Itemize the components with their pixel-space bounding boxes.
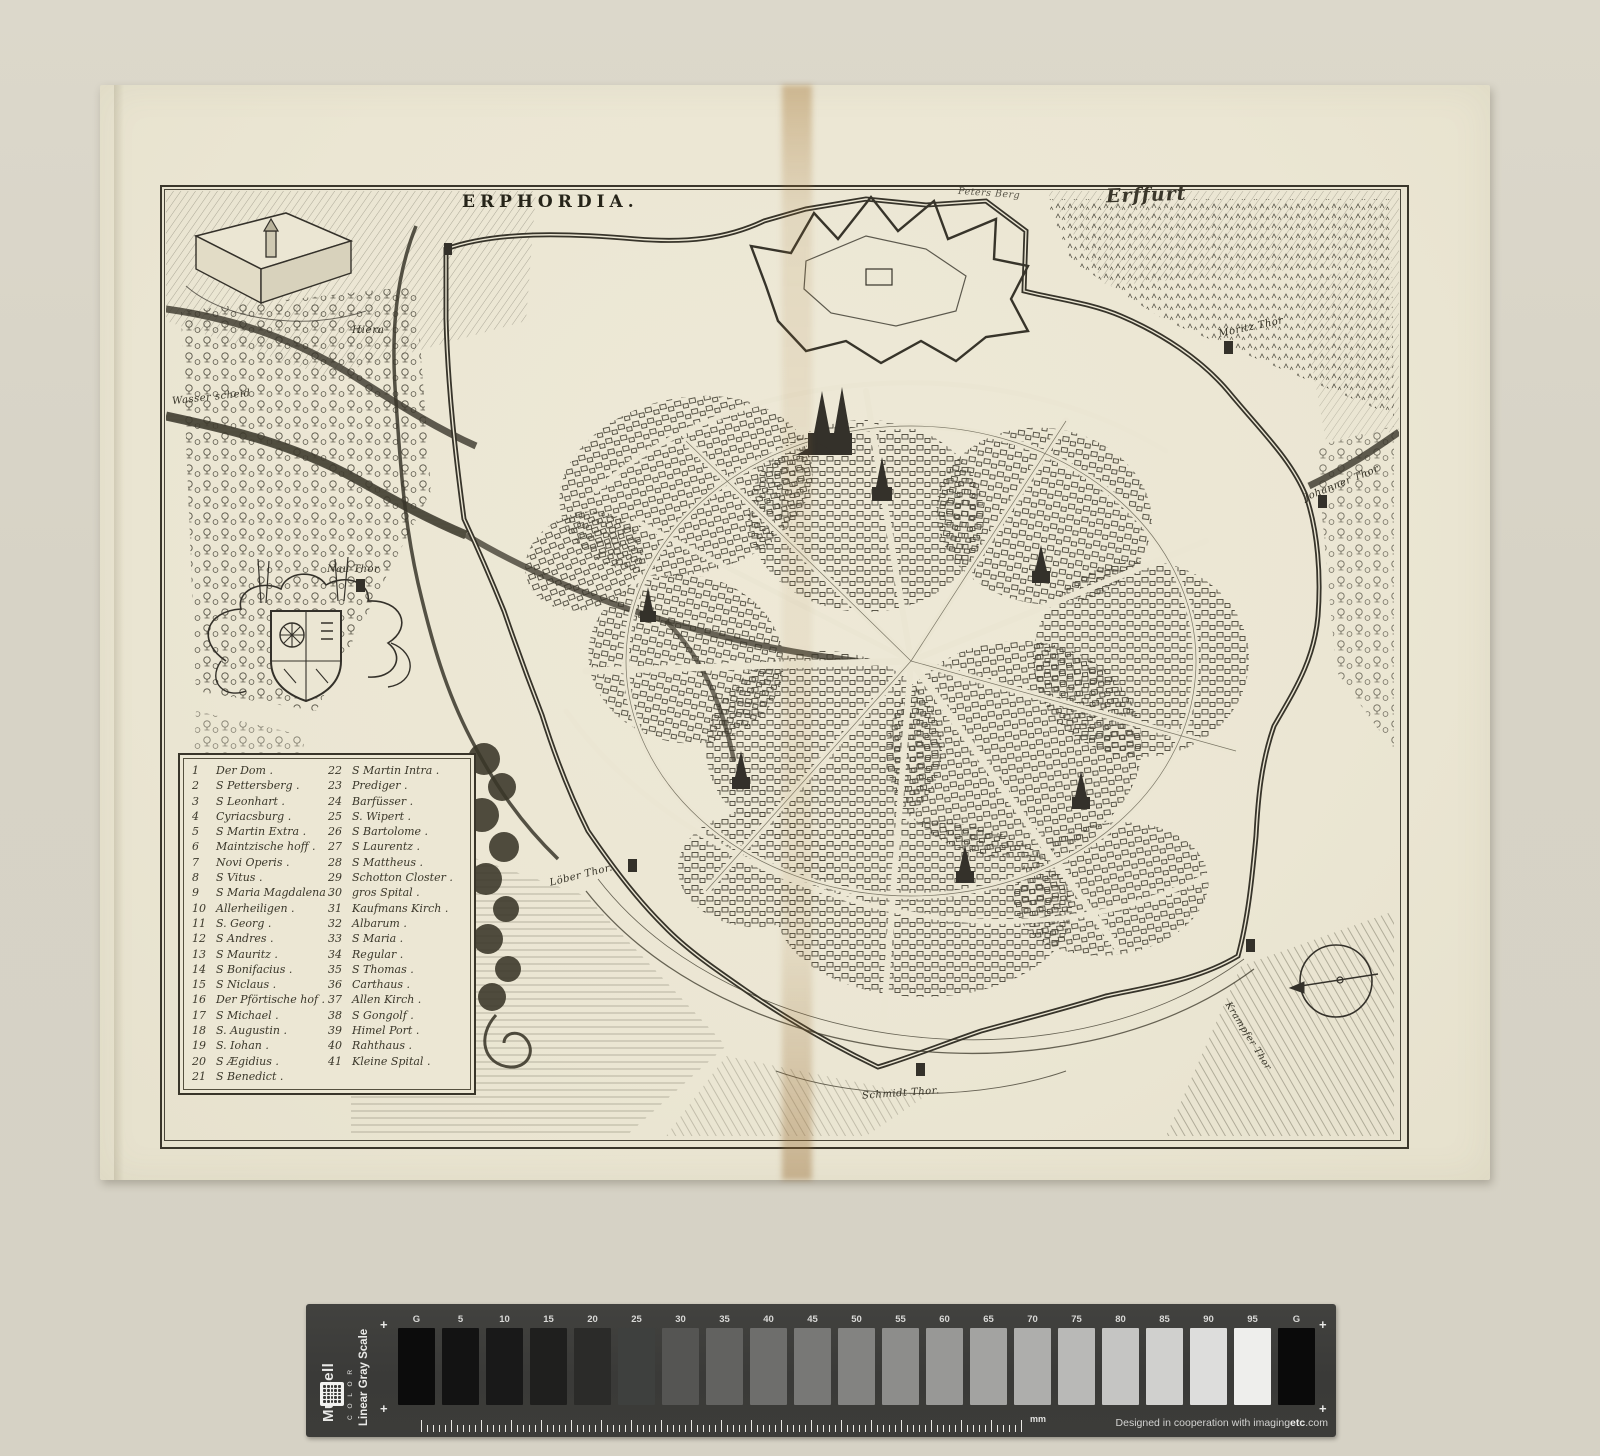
legend-entry-name: S Bonifacius . bbox=[216, 962, 292, 977]
legend-entry-number: 34 bbox=[328, 947, 352, 962]
ruler-tick bbox=[475, 1425, 476, 1432]
ruler-tick bbox=[943, 1425, 944, 1432]
legend-entry-number: 19 bbox=[192, 1038, 216, 1053]
patch-swatch bbox=[1058, 1328, 1095, 1405]
legend-entry-name: Rahthaus . bbox=[352, 1038, 412, 1053]
legend-entry-number: 20 bbox=[192, 1054, 216, 1069]
ruler-tick bbox=[583, 1425, 584, 1432]
ruler-tick bbox=[631, 1420, 632, 1432]
ruler-tick bbox=[697, 1425, 698, 1432]
patch-label: 25 bbox=[618, 1312, 655, 1328]
legend-entry-number: 9 bbox=[192, 885, 216, 900]
ruler-tick bbox=[883, 1425, 884, 1432]
ruler-tick bbox=[871, 1420, 872, 1432]
ruler-tick bbox=[853, 1425, 854, 1432]
ruler-tick bbox=[613, 1425, 614, 1432]
ruler-tick bbox=[859, 1425, 860, 1432]
ruler-tick bbox=[535, 1425, 536, 1432]
legend-entry: 41Kleine Spital . bbox=[328, 1054, 464, 1069]
legend-entry: 33S Maria . bbox=[328, 931, 464, 946]
legend-entry-name: Cyriacsburg . bbox=[216, 809, 291, 824]
ruler-tick bbox=[451, 1420, 452, 1432]
legend-entry-name: Albarum . bbox=[352, 916, 407, 931]
legend-entry-name: S Ægidius . bbox=[216, 1054, 279, 1069]
legend-entry-number: 12 bbox=[192, 931, 216, 946]
grayscale-patch: 75 bbox=[1058, 1312, 1095, 1405]
legend-entry-number: 27 bbox=[328, 839, 352, 854]
grayscale-patch: 80 bbox=[1102, 1312, 1139, 1405]
legend-entry-name: S Mauritz . bbox=[216, 947, 278, 962]
grayscale-patch: G bbox=[398, 1312, 435, 1405]
ruler-tick bbox=[739, 1425, 740, 1432]
ruler-tick bbox=[445, 1425, 446, 1432]
legend-entry: 39Himel Port . bbox=[328, 1023, 464, 1038]
grayscale-patch: 20 bbox=[574, 1312, 611, 1405]
legend-entry-name: S. Iohan . bbox=[216, 1038, 269, 1053]
ruler-tick bbox=[565, 1425, 566, 1432]
legend-entry-number: 8 bbox=[192, 870, 216, 885]
legend-entry-number: 6 bbox=[192, 839, 216, 854]
ruler-tick bbox=[679, 1425, 680, 1432]
ruler-tick bbox=[649, 1425, 650, 1432]
ruler-tick bbox=[973, 1425, 974, 1432]
patch-label: 75 bbox=[1058, 1312, 1095, 1328]
legend-col1: 1Der Dom .2S Pettersberg .3S Leonhart .4… bbox=[192, 763, 328, 1085]
legend-entry: 31Kaufmans Kirch . bbox=[328, 901, 464, 916]
grayscale-patch: 40 bbox=[750, 1312, 787, 1405]
ruler-tick bbox=[751, 1420, 752, 1432]
patch-label: 90 bbox=[1190, 1312, 1227, 1328]
legend-entry-name: S. Georg . bbox=[216, 916, 271, 931]
legend-entry-name: Der Pförtische hof . bbox=[216, 992, 325, 1007]
credit-text: Designed in cooperation with imagingetc.… bbox=[1076, 1417, 1328, 1429]
ruler-tick bbox=[787, 1425, 788, 1432]
patch-swatch bbox=[618, 1328, 655, 1405]
legend-entry: 18S. Augustin . bbox=[192, 1023, 328, 1038]
legend-entry-number: 26 bbox=[328, 824, 352, 839]
patch-swatch bbox=[838, 1328, 875, 1405]
legend-entry: 6Maintzische hoff . bbox=[192, 839, 328, 854]
ruler-tick bbox=[601, 1420, 602, 1432]
ruler-tick bbox=[595, 1425, 596, 1432]
patch-label: 80 bbox=[1102, 1312, 1139, 1328]
legend-entry-name: S Leonhart . bbox=[216, 794, 285, 809]
grayscale-patch: 25 bbox=[618, 1312, 655, 1405]
legend-col2: 22S Martin Intra .23Prediger .24Barfüsse… bbox=[328, 763, 464, 1085]
legend-entry: 4Cyriacsburg . bbox=[192, 809, 328, 824]
ruler-tick bbox=[949, 1425, 950, 1432]
patch-swatch bbox=[398, 1328, 435, 1405]
ruler-tick bbox=[709, 1425, 710, 1432]
ruler-tick bbox=[865, 1425, 866, 1432]
legend-entry: 36Carthaus . bbox=[328, 977, 464, 992]
ruler-tick bbox=[637, 1425, 638, 1432]
ruler-tick bbox=[811, 1420, 812, 1432]
ruler-tick bbox=[889, 1425, 890, 1432]
legend-entry-name: Allerheiligen . bbox=[216, 901, 295, 916]
grayscale-patch: 10 bbox=[486, 1312, 523, 1405]
legend-entry: 34Regular . bbox=[328, 947, 464, 962]
legend-entry-number: 2 bbox=[192, 778, 216, 793]
ruler-tick bbox=[511, 1420, 512, 1432]
ruler-tick bbox=[427, 1425, 428, 1432]
ruler-tick bbox=[877, 1425, 878, 1432]
legend-entry: 20S Ægidius . bbox=[192, 1054, 328, 1069]
patch-label: 85 bbox=[1146, 1312, 1183, 1328]
legend-entry: 10Allerheiligen . bbox=[192, 901, 328, 916]
legend-entry: 14S Bonifacius . bbox=[192, 962, 328, 977]
legend-entry: 2S Pettersberg . bbox=[192, 778, 328, 793]
ruler-tick bbox=[529, 1425, 530, 1432]
ruler-tick bbox=[661, 1420, 662, 1432]
legend-entry: 35S Thomas . bbox=[328, 962, 464, 977]
ruler-tick bbox=[523, 1425, 524, 1432]
legend-entry: 1Der Dom . bbox=[192, 763, 328, 778]
patch-label: 95 bbox=[1234, 1312, 1271, 1328]
patch-swatch bbox=[442, 1328, 479, 1405]
legend-entry-number: 5 bbox=[192, 824, 216, 839]
legend-entry-name: S Bartolome . bbox=[352, 824, 428, 839]
ruler-tick bbox=[703, 1425, 704, 1432]
legend-entry-number: 29 bbox=[328, 870, 352, 885]
legend-entry-name: Allen Kirch . bbox=[352, 992, 421, 1007]
ruler-tick bbox=[817, 1425, 818, 1432]
legend-entry: 17S Michael . bbox=[192, 1008, 328, 1023]
ruler-tick bbox=[691, 1420, 692, 1432]
legend-entry: 7Novi Operis . bbox=[192, 855, 328, 870]
ruler-tick bbox=[913, 1425, 914, 1432]
ruler-unit-label: mm bbox=[1030, 1414, 1046, 1424]
ruler-tick bbox=[757, 1425, 758, 1432]
legend-entry-name: Carthaus . bbox=[352, 977, 410, 992]
legend: 1Der Dom .2S Pettersberg .3S Leonhart .4… bbox=[192, 763, 464, 1085]
legend-entry-name: Novi Operis . bbox=[216, 855, 289, 870]
legend-entry: 12S Andres . bbox=[192, 931, 328, 946]
paper-fold-crease bbox=[114, 85, 124, 1180]
patch-swatch bbox=[1102, 1328, 1139, 1405]
legend-entry-name: S Niclaus . bbox=[216, 977, 276, 992]
legend-entry: 3S Leonhart . bbox=[192, 794, 328, 809]
patch-label: 10 bbox=[486, 1312, 523, 1328]
ruler-tick bbox=[673, 1425, 674, 1432]
legend-entry-name: S. Wipert . bbox=[352, 809, 411, 824]
patch-swatch bbox=[1190, 1328, 1227, 1405]
ruler-tick bbox=[997, 1425, 998, 1432]
grayscale-patch: 60 bbox=[926, 1312, 963, 1405]
ruler-tick bbox=[805, 1425, 806, 1432]
patch-swatch bbox=[662, 1328, 699, 1405]
ruler-tick bbox=[547, 1425, 548, 1432]
patch-swatch bbox=[794, 1328, 831, 1405]
legend-entry: 15S Niclaus . bbox=[192, 977, 328, 992]
legend-entry: 23Prediger . bbox=[328, 778, 464, 793]
legend-entry: 28S Mattheus . bbox=[328, 855, 464, 870]
ruler-tick bbox=[667, 1425, 668, 1432]
legend-entry: 32Albarum . bbox=[328, 916, 464, 931]
ruler-tick bbox=[763, 1425, 764, 1432]
ruler-tick bbox=[715, 1425, 716, 1432]
grayscale-patch: 35 bbox=[706, 1312, 743, 1405]
legend-entry-number: 7 bbox=[192, 855, 216, 870]
patch-label: G bbox=[1278, 1312, 1315, 1328]
legend-entry-number: 4 bbox=[192, 809, 216, 824]
legend-entry: 21S Benedict . bbox=[192, 1069, 328, 1084]
grayscale-patch: 50 bbox=[838, 1312, 875, 1405]
patch-swatch bbox=[750, 1328, 787, 1405]
map-title: ERPHORDIA. bbox=[462, 192, 639, 212]
legend-entry-number: 33 bbox=[328, 931, 352, 946]
ruler-tick bbox=[1003, 1425, 1004, 1432]
ruler-ticks bbox=[421, 1416, 1031, 1434]
patch-swatch bbox=[1014, 1328, 1051, 1405]
grayscale-patch: 55 bbox=[882, 1312, 919, 1405]
legend-entry-name: S Martin Extra . bbox=[216, 824, 306, 839]
ruler-tick bbox=[991, 1420, 992, 1432]
fold-stain bbox=[782, 85, 812, 1180]
legend-entry-name: S Laurentz . bbox=[352, 839, 420, 854]
patch-swatch bbox=[926, 1328, 963, 1405]
ruler-tick bbox=[835, 1425, 836, 1432]
legend-entry-number: 31 bbox=[328, 901, 352, 916]
ruler-tick bbox=[607, 1425, 608, 1432]
ruler-tick bbox=[625, 1425, 626, 1432]
ruler-tick bbox=[655, 1425, 656, 1432]
ruler-tick bbox=[967, 1425, 968, 1432]
ruler-tick bbox=[505, 1425, 506, 1432]
label-nau-thor: Nau Thor bbox=[327, 564, 379, 575]
ruler-tick bbox=[847, 1425, 848, 1432]
legend-entry-number: 24 bbox=[328, 794, 352, 809]
legend-entry-name: gros Spital . bbox=[352, 885, 420, 900]
ruler-tick bbox=[487, 1425, 488, 1432]
ruler-tick bbox=[907, 1425, 908, 1432]
ruler-tick bbox=[517, 1425, 518, 1432]
ruler-tick bbox=[721, 1420, 722, 1432]
legend-entry-name: S Vitus . bbox=[216, 870, 262, 885]
ruler-tick bbox=[553, 1425, 554, 1432]
legend-entry-name: S Martin Intra . bbox=[352, 763, 439, 778]
legend-entry-number: 38 bbox=[328, 1008, 352, 1023]
legend-entry-number: 10 bbox=[192, 901, 216, 916]
credit-prefix: Designed in cooperation with imaging bbox=[1116, 1417, 1291, 1429]
patch-label: 30 bbox=[662, 1312, 699, 1328]
ruler-tick bbox=[985, 1425, 986, 1432]
patch-swatch bbox=[706, 1328, 743, 1405]
river-label-hiera: Hiera bbox=[352, 324, 385, 336]
grayscale-patch: 15 bbox=[530, 1312, 567, 1405]
legend-entry-name: S Maria Magdalena . bbox=[216, 885, 333, 900]
patch-label: 45 bbox=[794, 1312, 831, 1328]
credit-suffix: .com bbox=[1305, 1417, 1328, 1429]
legend-entry-name: Schotton Closter . bbox=[352, 870, 453, 885]
ruler-tick bbox=[1009, 1425, 1010, 1432]
legend-entry: 22S Martin Intra . bbox=[328, 763, 464, 778]
ruler-tick bbox=[457, 1425, 458, 1432]
legend-entry-name: Barfüsser . bbox=[352, 794, 413, 809]
ruler-tick bbox=[823, 1425, 824, 1432]
legend-entry: 38S Gongolf . bbox=[328, 1008, 464, 1023]
legend-entry-name: S Gongolf . bbox=[352, 1008, 414, 1023]
legend-entry-name: S Thomas . bbox=[352, 962, 414, 977]
patch-swatch bbox=[574, 1328, 611, 1405]
patch-label: 15 bbox=[530, 1312, 567, 1328]
ruler-tick bbox=[775, 1425, 776, 1432]
legend-entry-number: 25 bbox=[328, 809, 352, 824]
legend-entry-number: 40 bbox=[328, 1038, 352, 1053]
legend-entry-name: S Benedict . bbox=[216, 1069, 283, 1084]
legend-entry-name: S Andres . bbox=[216, 931, 274, 946]
legend-entry-name: Kleine Spital . bbox=[352, 1054, 430, 1069]
legend-entry-number: 28 bbox=[328, 855, 352, 870]
patch-label: 35 bbox=[706, 1312, 743, 1328]
munsell-grayscale-bar: Munsell C O L O R Linear Gray Scale + + … bbox=[306, 1304, 1336, 1437]
patch-swatch bbox=[1278, 1328, 1315, 1405]
ruler-tick bbox=[643, 1425, 644, 1432]
legend-entry-name: Maintzische hoff . bbox=[216, 839, 316, 854]
patch-swatch bbox=[1234, 1328, 1271, 1405]
ruler-tick bbox=[931, 1420, 932, 1432]
ruler-tick bbox=[481, 1420, 482, 1432]
legend-entry-number: 1 bbox=[192, 763, 216, 778]
legend-entry-name: Regular . bbox=[352, 947, 403, 962]
ruler-tick bbox=[619, 1425, 620, 1432]
patch-swatch bbox=[486, 1328, 523, 1405]
ruler-tick bbox=[463, 1425, 464, 1432]
legend-entry: 27S Laurentz . bbox=[328, 839, 464, 854]
legend-entry-number: 41 bbox=[328, 1054, 352, 1069]
legend-entry-number: 11 bbox=[192, 916, 216, 931]
legend-entry-number: 39 bbox=[328, 1023, 352, 1038]
legend-entry-name: Himel Port . bbox=[352, 1023, 419, 1038]
legend-entry: 24Barfüsser . bbox=[328, 794, 464, 809]
legend-entry: 25S. Wipert . bbox=[328, 809, 464, 824]
grayscale-patch: G bbox=[1278, 1312, 1315, 1405]
grayscale-patch: 45 bbox=[794, 1312, 831, 1405]
legend-entry-number: 17 bbox=[192, 1008, 216, 1023]
patch-swatch bbox=[530, 1328, 567, 1405]
credit-bold: etc bbox=[1290, 1417, 1305, 1429]
patch-label: 60 bbox=[926, 1312, 963, 1328]
ruler-tick bbox=[1015, 1425, 1016, 1432]
legend-entry: 37Allen Kirch . bbox=[328, 992, 464, 1007]
patch-label: 40 bbox=[750, 1312, 787, 1328]
legend-entry-number: 22 bbox=[328, 763, 352, 778]
ruler-tick bbox=[799, 1425, 800, 1432]
legend-entry-number: 18 bbox=[192, 1023, 216, 1038]
patch-label: 20 bbox=[574, 1312, 611, 1328]
ruler-tick bbox=[499, 1425, 500, 1432]
ruler-tick bbox=[829, 1425, 830, 1432]
legend-entry-number: 21 bbox=[192, 1069, 216, 1084]
legend-entry-number: 37 bbox=[328, 992, 352, 1007]
ruler-tick bbox=[541, 1420, 542, 1432]
grayscale-patch: 90 bbox=[1190, 1312, 1227, 1405]
legend-entry-name: Der Dom . bbox=[216, 763, 273, 778]
ruler-tick bbox=[571, 1420, 572, 1432]
legend-entry: 40Rahthaus . bbox=[328, 1038, 464, 1053]
ruler-tick bbox=[979, 1425, 980, 1432]
ruler-tick bbox=[493, 1425, 494, 1432]
legend-entry-name: S Mattheus . bbox=[352, 855, 423, 870]
ruler-tick bbox=[589, 1425, 590, 1432]
ruler-tick bbox=[745, 1425, 746, 1432]
legend-entry-number: 16 bbox=[192, 992, 216, 1007]
patch-label: 5 bbox=[442, 1312, 479, 1328]
legend-entry: 8S Vitus . bbox=[192, 870, 328, 885]
ruler-tick bbox=[895, 1425, 896, 1432]
ruler-tick bbox=[961, 1420, 962, 1432]
legend-entry-number: 30 bbox=[328, 885, 352, 900]
ruler-tick bbox=[733, 1425, 734, 1432]
grayscale-patch: 95 bbox=[1234, 1312, 1271, 1405]
ruler-tick bbox=[685, 1425, 686, 1432]
patch-label: 50 bbox=[838, 1312, 875, 1328]
patch-label: G bbox=[398, 1312, 435, 1328]
grayscale-patch: 65 bbox=[970, 1312, 1007, 1405]
ruler-tick bbox=[841, 1420, 842, 1432]
legend-entry-number: 14 bbox=[192, 962, 216, 977]
legend-entry-number: 35 bbox=[328, 962, 352, 977]
legend-entry-name: S Pettersberg . bbox=[216, 778, 300, 793]
legend-entry: 19S. Iohan . bbox=[192, 1038, 328, 1053]
legend-entry-number: 32 bbox=[328, 916, 352, 931]
ruler-tick bbox=[577, 1425, 578, 1432]
patch-swatch bbox=[970, 1328, 1007, 1405]
ruler-tick bbox=[925, 1425, 926, 1432]
ruler-tick bbox=[727, 1425, 728, 1432]
legend-entry-number: 3 bbox=[192, 794, 216, 809]
ruler-tick bbox=[469, 1425, 470, 1432]
legend-entry: 30gros Spital . bbox=[328, 885, 464, 900]
patch-swatch bbox=[882, 1328, 919, 1405]
city-name-label: Erffurt bbox=[1106, 183, 1187, 208]
legend-entry-name: S. Augustin . bbox=[216, 1023, 287, 1038]
ruler-tick bbox=[439, 1425, 440, 1432]
grayscale-patch: 85 bbox=[1146, 1312, 1183, 1405]
legend-entry: 26S Bartolome . bbox=[328, 824, 464, 839]
ruler-tick bbox=[421, 1420, 422, 1432]
ruler-tick bbox=[1021, 1420, 1022, 1432]
grayscale-patch: 70 bbox=[1014, 1312, 1051, 1405]
legend-entry-number: 23 bbox=[328, 778, 352, 793]
ruler-tick bbox=[769, 1425, 770, 1432]
patch-label: 70 bbox=[1014, 1312, 1051, 1328]
legend-entry: 11S. Georg . bbox=[192, 916, 328, 931]
legend-entry: 9S Maria Magdalena . bbox=[192, 885, 328, 900]
ruler-tick bbox=[919, 1425, 920, 1432]
legend-entry-name: S Maria . bbox=[352, 931, 403, 946]
ruler-tick bbox=[955, 1425, 956, 1432]
ruler-tick bbox=[433, 1425, 434, 1432]
legend-entry-number: 15 bbox=[192, 977, 216, 992]
legend-entry-name: Kaufmans Kirch . bbox=[352, 901, 448, 916]
legend-entry: 16Der Pförtische hof . bbox=[192, 992, 328, 1007]
legend-entry: 29Schotton Closter . bbox=[328, 870, 464, 885]
patch-label: 65 bbox=[970, 1312, 1007, 1328]
ruler-tick bbox=[793, 1425, 794, 1432]
grayscale-patch: 5 bbox=[442, 1312, 479, 1405]
ruler-tick bbox=[559, 1425, 560, 1432]
ruler-tick bbox=[937, 1425, 938, 1432]
legend-entry: 13S Mauritz . bbox=[192, 947, 328, 962]
legend-entry-number: 36 bbox=[328, 977, 352, 992]
grayscale-patch: 30 bbox=[662, 1312, 699, 1405]
patch-label: 55 bbox=[882, 1312, 919, 1328]
legend-entry-number: 13 bbox=[192, 947, 216, 962]
legend-entry: 5S Martin Extra . bbox=[192, 824, 328, 839]
ruler-tick bbox=[781, 1420, 782, 1432]
legend-entry-name: S Michael . bbox=[216, 1008, 279, 1023]
